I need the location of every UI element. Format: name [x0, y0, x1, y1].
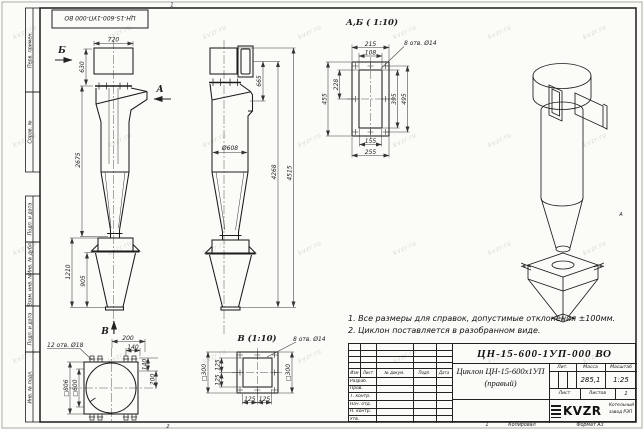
note-line: 2. Циклон поставляется в разобранном вид…: [348, 325, 634, 337]
dim-label: 155: [365, 138, 377, 145]
front-view: 665 4268 4515 Ø608: [206, 40, 297, 336]
scale-label: Масштаб: [605, 363, 637, 371]
row-nachotd: Нач. отд.: [350, 402, 376, 407]
dim-label: 200: [122, 335, 134, 342]
col-list: Лист: [360, 368, 376, 377]
part-name-line2: (правый): [452, 377, 549, 389]
dim-label: □806: [63, 379, 70, 396]
col-izm: Изм: [349, 368, 360, 377]
drawing-sheet: kvzr.rukvzr.rukvzr.rukvzr.rukvzr.rukvzr.…: [0, 0, 644, 430]
company-logo: KVZR: [551, 401, 607, 421]
row-prov: Пров.: [350, 386, 376, 391]
zone-mark-top: 1: [170, 3, 173, 9]
margin-label: Подп. и дата: [28, 203, 34, 236]
dim-label: 495: [401, 93, 408, 105]
margin-label: Подп. и дата: [28, 313, 34, 346]
title-block: ЦН-15-600-1УП-000 ВО Циклон ЦН-15-600х1У…: [348, 343, 636, 422]
detail-title: В (1:10): [236, 333, 276, 344]
zone-mark-bottom: 2: [166, 424, 169, 430]
row-utv: Утв.: [350, 417, 376, 422]
note-line: 1. Все размеры для справок, допустимые о…: [348, 313, 634, 325]
dim-label: 395: [391, 93, 398, 105]
company-name-line2: завод РЭП: [609, 409, 637, 416]
detail-title: А,Б ( 1:10): [345, 17, 398, 28]
dim-label: 665: [256, 75, 263, 87]
dim-label: 125: [215, 374, 222, 386]
dim-label: 228: [333, 79, 340, 91]
dim-label: 125: [244, 396, 256, 403]
dim-label: 1210: [65, 264, 72, 279]
view-arrow-label-b: Б: [57, 46, 66, 56]
dim-label: □300: [285, 364, 292, 381]
copied-label: Копировал: [492, 423, 552, 428]
dim-label: 125: [259, 396, 271, 403]
col-podp: Подп.: [413, 368, 436, 377]
doc-number: ЦН-15-600-1УП-000 ВО: [452, 344, 637, 363]
mass-label: Масса: [576, 363, 605, 371]
col-doc: № докум.: [376, 368, 413, 377]
part-name-line1: Циклон ЦН-15-600х1УП: [452, 365, 549, 377]
view-arrow-label-a: А: [155, 85, 163, 95]
detail-ab: А,Б ( 1:10) 8 отв. Ø14: [322, 17, 437, 158]
dim-label: Ø608: [221, 145, 238, 152]
side-view: 720 630 2675 1210 905 Б А В: [55, 37, 171, 338]
dim-label: 140: [142, 359, 149, 371]
dim-label: 905: [80, 275, 87, 287]
detail-v: В (1:10) 8 отв. Ø14 □300 125: [201, 333, 326, 405]
dim-label: 140: [127, 344, 139, 351]
company-name: Котельный завод РЭП: [609, 402, 637, 422]
logo-bars-icon: [551, 405, 561, 418]
isometric-view: [521, 64, 607, 323]
dim-label: 215: [365, 41, 377, 48]
mass-value: 285,1: [576, 371, 605, 388]
view-v-flange: 12 отв. Ø18 200 140 140 200 □806 □600: [47, 335, 158, 421]
row-razrab: Разраб.: [350, 379, 376, 384]
lit-label: Лит.: [549, 363, 576, 371]
dim-label: 255: [365, 149, 377, 156]
margin-label: Инв. № дубл.: [28, 242, 34, 275]
zone-mark-right: А: [618, 212, 623, 218]
dim-label: 108: [365, 50, 377, 57]
sheet-label: Лист: [549, 388, 580, 399]
dim-label: 630: [79, 61, 86, 73]
row-nkontr: Н. контр.: [350, 409, 376, 414]
col-data: Дата: [436, 368, 452, 377]
dim-label: 200: [150, 374, 157, 386]
dim-label: 2675: [75, 152, 82, 167]
dim-label: 720: [108, 37, 120, 44]
format-label: Формат А3: [558, 423, 622, 428]
dim-label: □300: [201, 364, 208, 381]
scale-value: 1:25: [605, 371, 637, 388]
sheets-label: Листов: [580, 388, 615, 399]
zone-mark-bottom-mid: 1: [483, 423, 491, 428]
sheets-value: 1: [615, 388, 637, 399]
dim-label: 4515: [287, 165, 294, 180]
margin-label: Инв. № подл.: [28, 370, 34, 403]
margin-label: Взам. инв. №: [28, 274, 34, 307]
row-tkontr: Т. контр.: [350, 394, 376, 399]
dim-label: □600: [72, 379, 79, 396]
hole-callout: 8 отв. Ø14: [293, 336, 326, 343]
hole-callout: 8 отв. Ø14: [404, 40, 437, 47]
dim-label: 4268: [271, 164, 278, 179]
hole-callout: 12 отв. Ø18: [47, 342, 84, 349]
dim-label: 125: [215, 359, 222, 371]
margin-label: Справ. №: [28, 120, 34, 143]
company-name-line1: Котельный: [609, 402, 637, 409]
logo-text: KVZR: [563, 404, 602, 418]
stamp-doc-number: ЦН-15-600-1УП-000 ВО: [64, 14, 135, 21]
dim-label: 455: [322, 93, 329, 105]
notes: 1. Все размеры для справок, допустимые о…: [348, 313, 634, 336]
view-arrow-label-v: В: [100, 327, 109, 337]
margin-label: Перв. примен.: [28, 32, 34, 68]
